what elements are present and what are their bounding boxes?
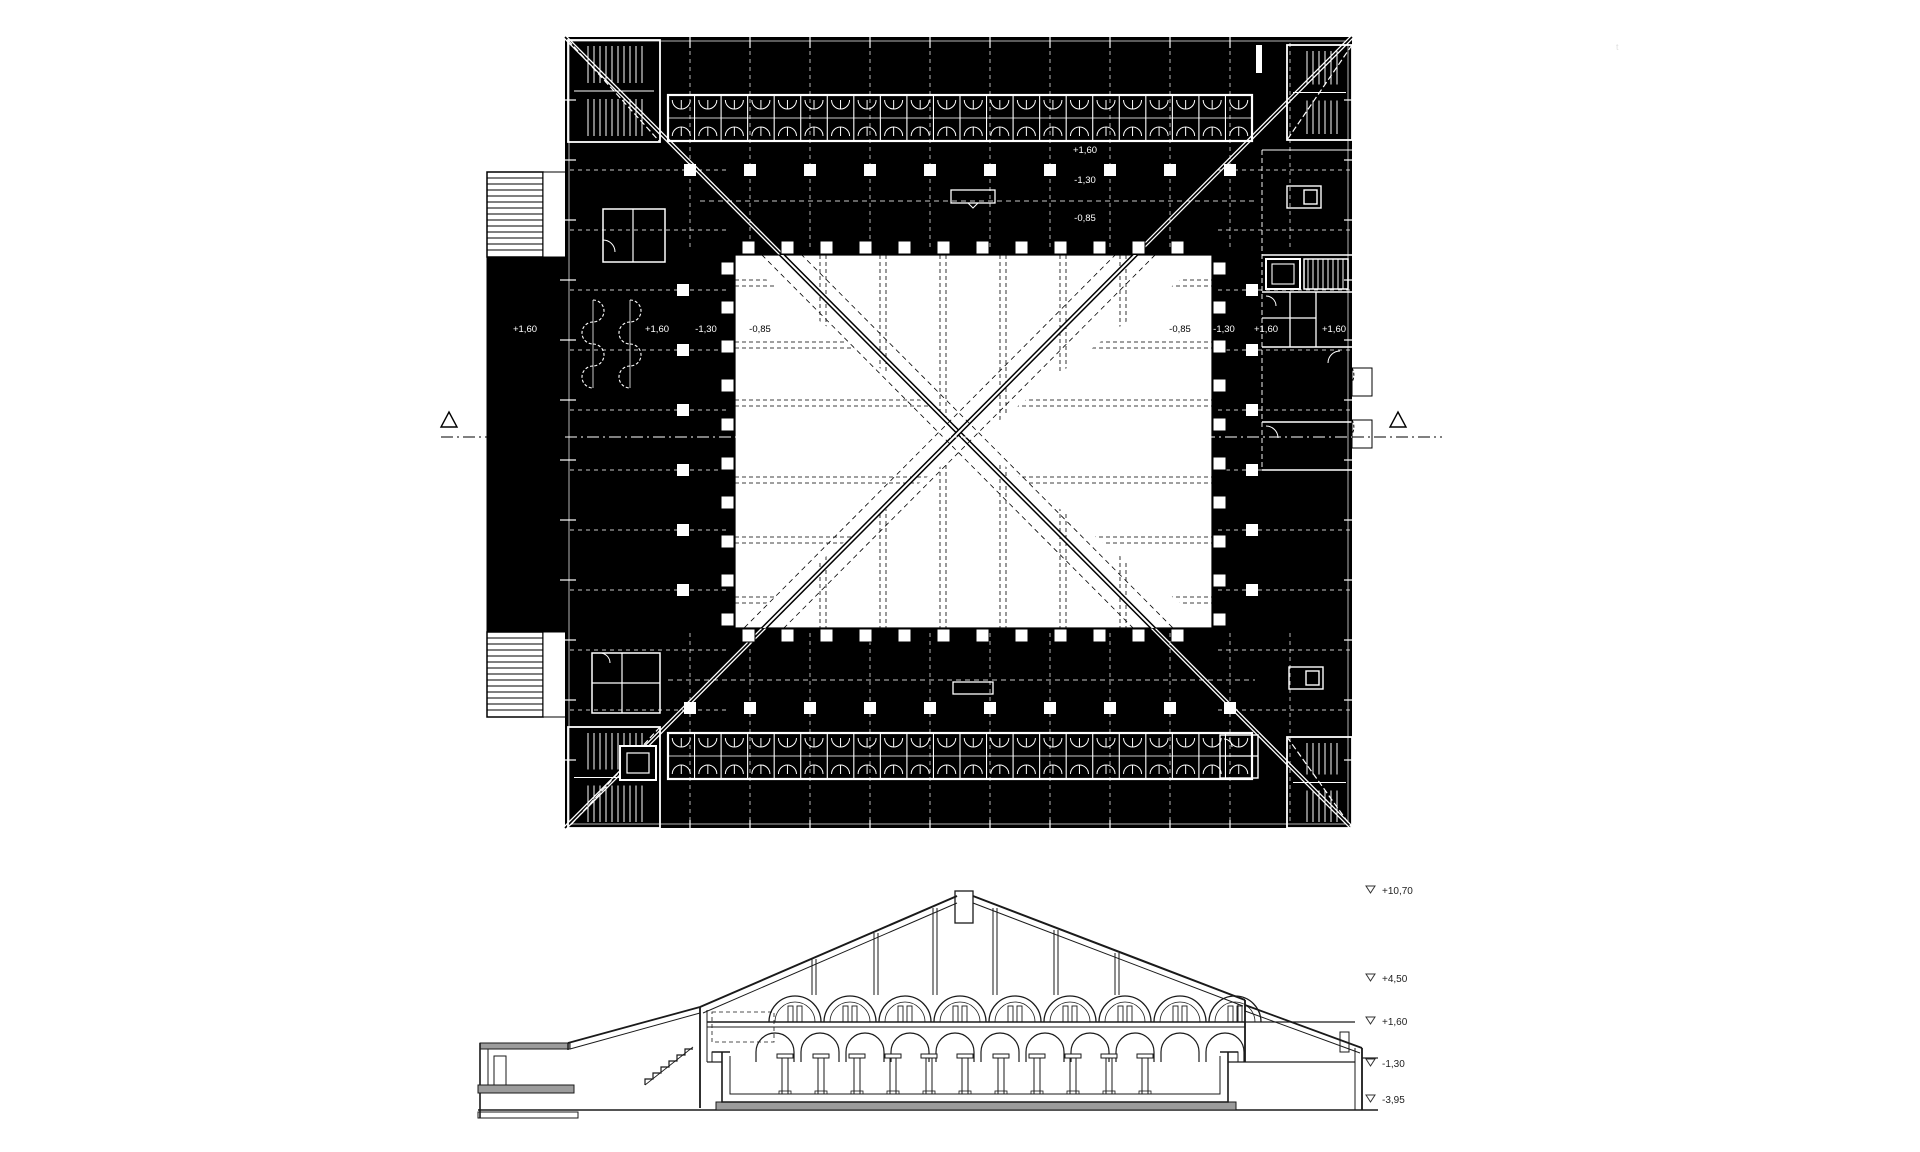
level-marker-icon — [1366, 1059, 1375, 1066]
building-section — [478, 891, 1378, 1118]
section-level-label: -1,30 — [1382, 1059, 1405, 1070]
plan-and-section-drawing: +1,60+1,60-1,30-0,85-0,85-1,30+1,60+1,60… — [0, 0, 1920, 1152]
level-marker-icon — [1366, 1095, 1375, 1102]
plan-level-label: +1,60 — [1254, 324, 1278, 335]
section-level-label: +4,50 — [1382, 974, 1408, 985]
plan-level-label: -0,85 — [1169, 324, 1191, 335]
print-artifact: t — [1616, 42, 1619, 52]
plan-level-label: -1,30 — [1074, 175, 1096, 186]
section-cut-marker-right — [1390, 412, 1406, 427]
floor-plan — [441, 32, 1442, 833]
section-cut-marker-left — [441, 412, 457, 427]
plan-level-label: -0,85 — [749, 324, 771, 335]
plan-level-label: +1,60 — [513, 324, 537, 335]
section-level-label: -3,95 — [1382, 1095, 1405, 1106]
architectural-drawing-sheet: { "sheet": { "kind": "architectural draw… — [0, 0, 1920, 1152]
plan-level-label: -1,30 — [1213, 324, 1235, 335]
section-level-label: +10,70 — [1382, 886, 1413, 897]
level-marker-icon — [1366, 886, 1375, 893]
plan-level-label: -1,30 — [695, 324, 717, 335]
section-level-label: +1,60 — [1382, 1017, 1408, 1028]
plan-level-label: -0,85 — [1074, 213, 1096, 224]
plan-level-label: +1,60 — [645, 324, 669, 335]
level-marker-icon — [1366, 974, 1375, 981]
plan-level-label: +1,60 — [1322, 324, 1346, 335]
plan-level-label: +1,60 — [1073, 145, 1097, 156]
level-marker-icon — [1366, 1017, 1375, 1024]
